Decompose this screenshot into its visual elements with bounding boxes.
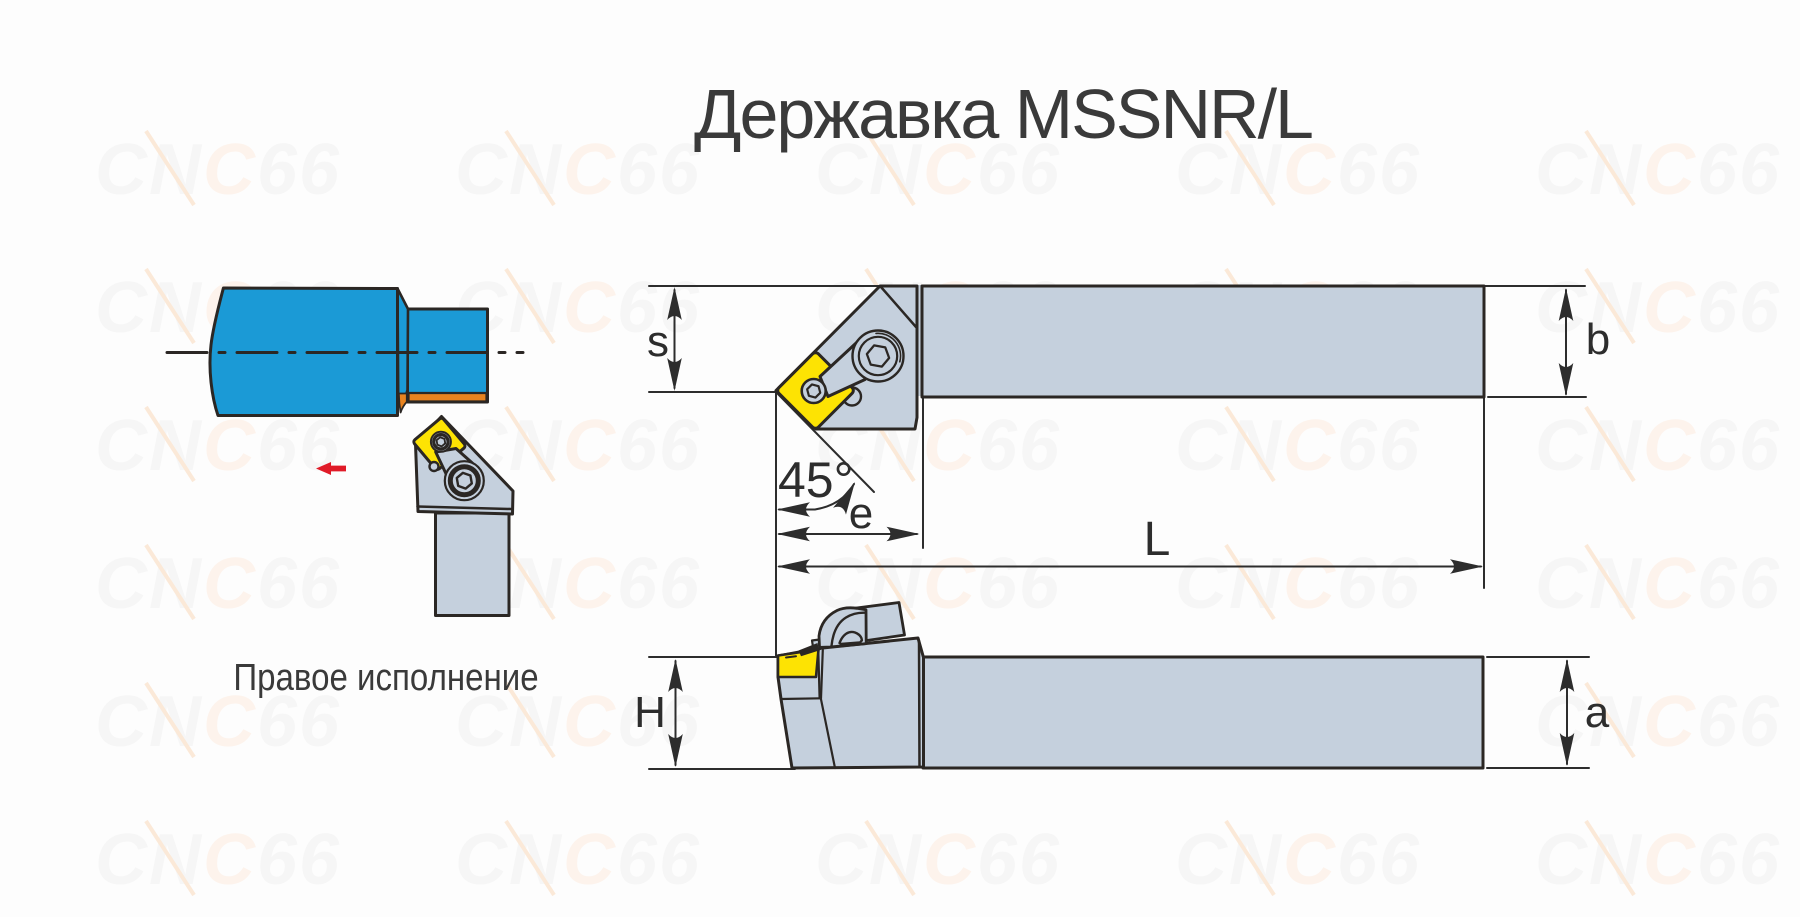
svg-text:45°: 45° <box>778 452 854 508</box>
svg-text:a: a <box>1585 688 1610 737</box>
svg-text:Правое исполнение: Правое исполнение <box>233 656 538 699</box>
svg-text:s: s <box>647 317 669 366</box>
svg-text:H: H <box>634 688 666 737</box>
svg-text:b: b <box>1586 315 1610 364</box>
svg-text:L: L <box>1144 513 1171 566</box>
svg-text:e: e <box>849 489 873 538</box>
svg-text:Державка MSSNR/L: Державка MSSNR/L <box>694 75 1312 153</box>
